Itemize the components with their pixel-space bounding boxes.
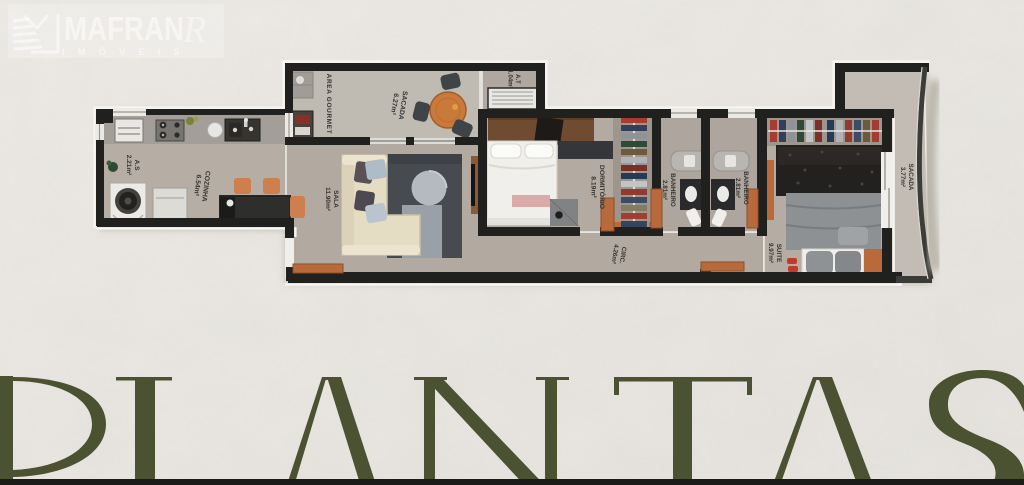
svg-text:2.21m²: 2.21m²	[125, 155, 132, 176]
svg-text:9.97m²: 9.97m²	[767, 243, 774, 263]
svg-text:MAFRAN: MAFRAN	[64, 10, 184, 47]
svg-text:A.S: A.S	[133, 160, 140, 172]
svg-text:11.90m²: 11.90m²	[324, 187, 331, 212]
svg-text:R: R	[182, 9, 206, 51]
svg-text:2.81m²: 2.81m²	[734, 178, 741, 198]
svg-text:BANHEIRO: BANHEIRO	[742, 171, 749, 205]
svg-text:1.04m²: 1.04m²	[507, 69, 514, 88]
svg-text:A.T: A.T	[514, 74, 520, 84]
svg-text:BANHEIRO: BANHEIRO	[669, 173, 676, 207]
svg-text:SUITE: SUITE	[775, 244, 782, 263]
svg-text:2.81m²: 2.81m²	[661, 180, 668, 200]
svg-text:IMÓVEIS: IMÓVEIS	[62, 46, 193, 58]
svg-text:SALA: SALA	[332, 190, 339, 208]
svg-text:DORMITÓRIO: DORMITÓRIO	[598, 165, 607, 209]
svg-text:8.19m²: 8.19m²	[590, 176, 597, 198]
svg-text:SACADA: SACADA	[907, 164, 914, 191]
svg-text:AREA GOURMET: AREA GOURMET	[325, 74, 332, 135]
svg-text:3.77m²: 3.77m²	[899, 167, 906, 187]
